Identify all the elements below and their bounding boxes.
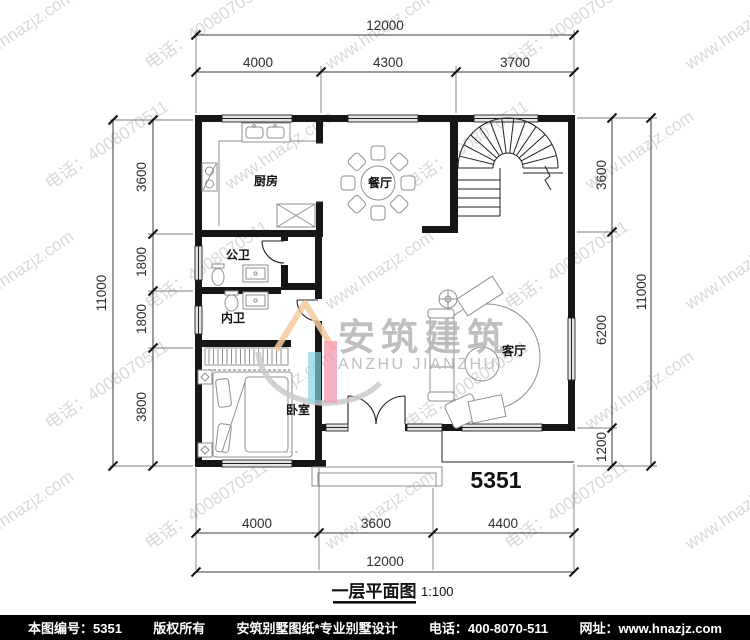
watermark-text: www.hnazjz.com [0, 227, 77, 314]
footer-sheet-number: 本图编号：5351 [28, 618, 122, 637]
living-side-window [568, 318, 575, 380]
dim-left-seg: 3600 [134, 162, 149, 192]
bedroom-furniture [198, 348, 298, 457]
entry-right-window [407, 424, 442, 431]
kitchen-sink [242, 123, 290, 142]
footer-bar: 本图编号：5351 版权所有 安筑别墅图纸*专业别墅设计 电话：400-8070… [0, 615, 750, 640]
watermark-text: www.hnazjz.com [321, 467, 437, 554]
public-bath-window [195, 246, 202, 280]
watermark-text: www.hnazjz.com [581, 347, 697, 434]
floor-lamp [439, 290, 457, 308]
stair-tread [523, 156, 557, 165]
watermark-text: 电话：4008070511 [142, 457, 272, 553]
watermark-text: www.hnazjz.com [681, 467, 750, 554]
stove [202, 163, 217, 191]
living-bottom-window [462, 424, 542, 431]
watermark-text: 电话：4008070511 [42, 337, 172, 433]
bedroom-label: 卧室 [286, 402, 310, 417]
stair-tread [521, 144, 552, 161]
footer-phone: 电话：400-8070-511 [429, 618, 548, 637]
dining-label: 餐厅 [368, 175, 392, 190]
dining-chair [347, 194, 367, 214]
dining-chair [401, 176, 415, 190]
watermark-text: 电话：4008070511 [42, 97, 172, 193]
break-line [545, 166, 551, 190]
dining-window [348, 115, 418, 122]
dim-top-total: 12000 [366, 18, 404, 33]
dining-chair [371, 146, 385, 160]
dining-chair [371, 206, 385, 220]
plan-number: 5351 [470, 467, 521, 493]
public-bath-door [262, 241, 284, 263]
title-underline [333, 601, 416, 604]
dim-left-total: 11000 [94, 275, 109, 312]
logo-text-en: ANZHU JIANZHU [338, 356, 498, 373]
dim-bottom-seg: 4400 [488, 516, 518, 531]
bed [213, 372, 292, 457]
kitchen-label: 厨房 [254, 173, 278, 188]
dim-top-seg: 4000 [243, 55, 273, 70]
watermark-text: www.hnazjz.com [0, 0, 77, 74]
dim-top-seg: 4300 [373, 55, 403, 70]
porch-steps [312, 431, 574, 486]
public-bath-label: 公卫 [226, 248, 250, 262]
nightstand [198, 370, 212, 384]
private-bath-fixtures [225, 291, 268, 311]
footer-company: 安筑别墅图纸*专业别墅设计 [237, 618, 398, 637]
dim-right-seg: 1200 [594, 432, 609, 462]
tv-console [457, 276, 503, 316]
wardrobe [205, 348, 290, 370]
public-bath-fixtures [212, 264, 268, 286]
footer-website: 网址：www.hnazjz.com [579, 618, 722, 637]
entry-left-window [326, 424, 348, 431]
watermark-text: 电话：4008070511 [402, 97, 532, 193]
private-bath-window [195, 306, 202, 334]
dim-left-seg: 3800 [134, 392, 149, 422]
floor-plan-sheet: www.hnazjz.com电话：4008070511www.hnazjz.co… [0, 0, 750, 640]
dim-bottom-total: 12000 [366, 554, 404, 569]
dim-right-seg: 6200 [594, 315, 609, 345]
watermark-text: www.hnazjz.com [681, 227, 750, 314]
nightstand [198, 443, 212, 457]
dim-bottom-seg: 4000 [242, 516, 272, 531]
dim-right-seg: 3600 [594, 160, 609, 190]
dim-left-seg: 1800 [134, 304, 149, 334]
dim-left-seg: 1800 [134, 247, 149, 277]
logo-text-cn: 安筑建筑 [338, 317, 510, 358]
kitchen-window [222, 115, 292, 122]
dim-bottom-seg: 3600 [361, 516, 391, 531]
living-label: 客厅 [501, 343, 526, 358]
dim-right-total: 11000 [634, 274, 649, 311]
watermark-text: www.hnazjz.com [321, 227, 437, 314]
dim-top-seg: 3700 [500, 55, 530, 70]
watermark-text: www.hnazjz.com [681, 0, 750, 74]
private-bath-label: 内卫 [221, 310, 245, 325]
plan-title: 一层平面图 [332, 582, 417, 601]
dining-chair [341, 176, 355, 190]
floor-plan-drawing: www.hnazjz.com电话：4008070511www.hnazjz.co… [0, 0, 750, 615]
dining-chair [347, 152, 367, 172]
dining-chair [389, 152, 409, 172]
watermark-text: www.hnazjz.com [0, 467, 77, 554]
plan-scale: 1:100 [421, 584, 454, 599]
dining-chair [389, 194, 409, 214]
footer-copyright: 版权所有 [153, 618, 205, 637]
stair-tread [513, 121, 525, 154]
refrigerator [277, 204, 315, 227]
bedroom-window [222, 460, 292, 467]
